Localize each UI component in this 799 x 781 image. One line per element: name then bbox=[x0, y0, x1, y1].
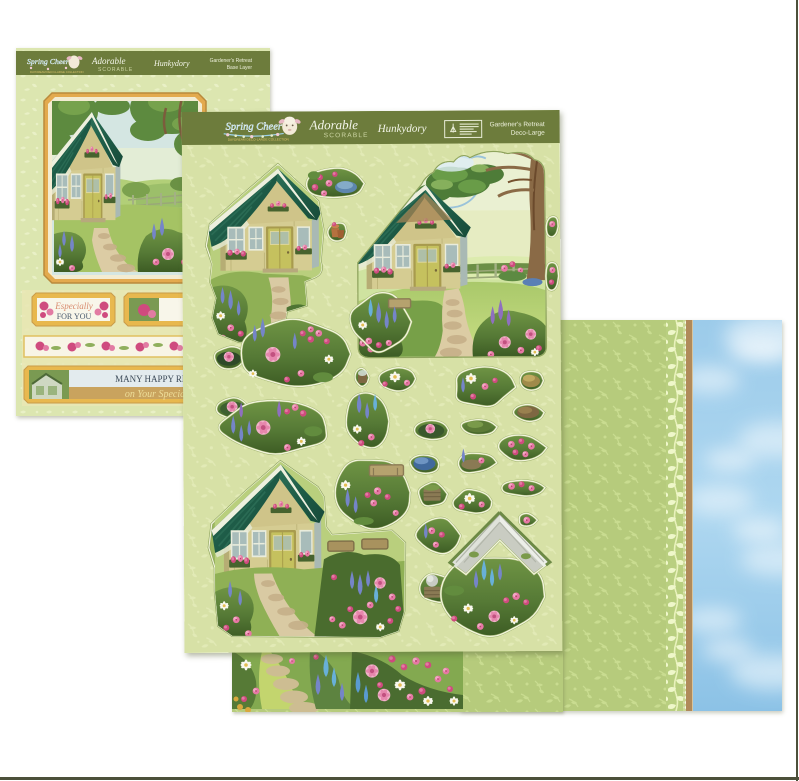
svg-text:Adorable: Adorable bbox=[91, 56, 126, 66]
svg-text:SCORABLE: SCORABLE bbox=[324, 132, 369, 139]
svg-text:Hunkydory: Hunkydory bbox=[153, 59, 190, 68]
svg-text:Deco-Large: Deco-Large bbox=[511, 130, 545, 137]
svg-text:DAYDREAM DECO-LARGE COLLECTION: DAYDREAM DECO-LARGE COLLECTION bbox=[228, 137, 290, 141]
svg-text:Hunkydory: Hunkydory bbox=[377, 123, 427, 135]
svg-text:Base Layer: Base Layer bbox=[227, 65, 253, 71]
svg-text:DAYDREAM DECO-LARGE COLLECTION: DAYDREAM DECO-LARGE COLLECTION bbox=[30, 70, 84, 74]
svg-text:Gardener's Retreat: Gardener's Retreat bbox=[210, 58, 253, 64]
svg-text:Spring Cheer: Spring Cheer bbox=[226, 121, 283, 132]
svg-text:Adorable: Adorable bbox=[309, 117, 359, 132]
svg-text:FOR YOU: FOR YOU bbox=[57, 312, 92, 321]
svg-text:Gardener's Retreat: Gardener's Retreat bbox=[490, 121, 545, 128]
svg-text:SCORABLE: SCORABLE bbox=[98, 67, 133, 73]
svg-text:Especially: Especially bbox=[54, 301, 93, 311]
svg-text:Spring Cheer: Spring Cheer bbox=[27, 57, 70, 66]
